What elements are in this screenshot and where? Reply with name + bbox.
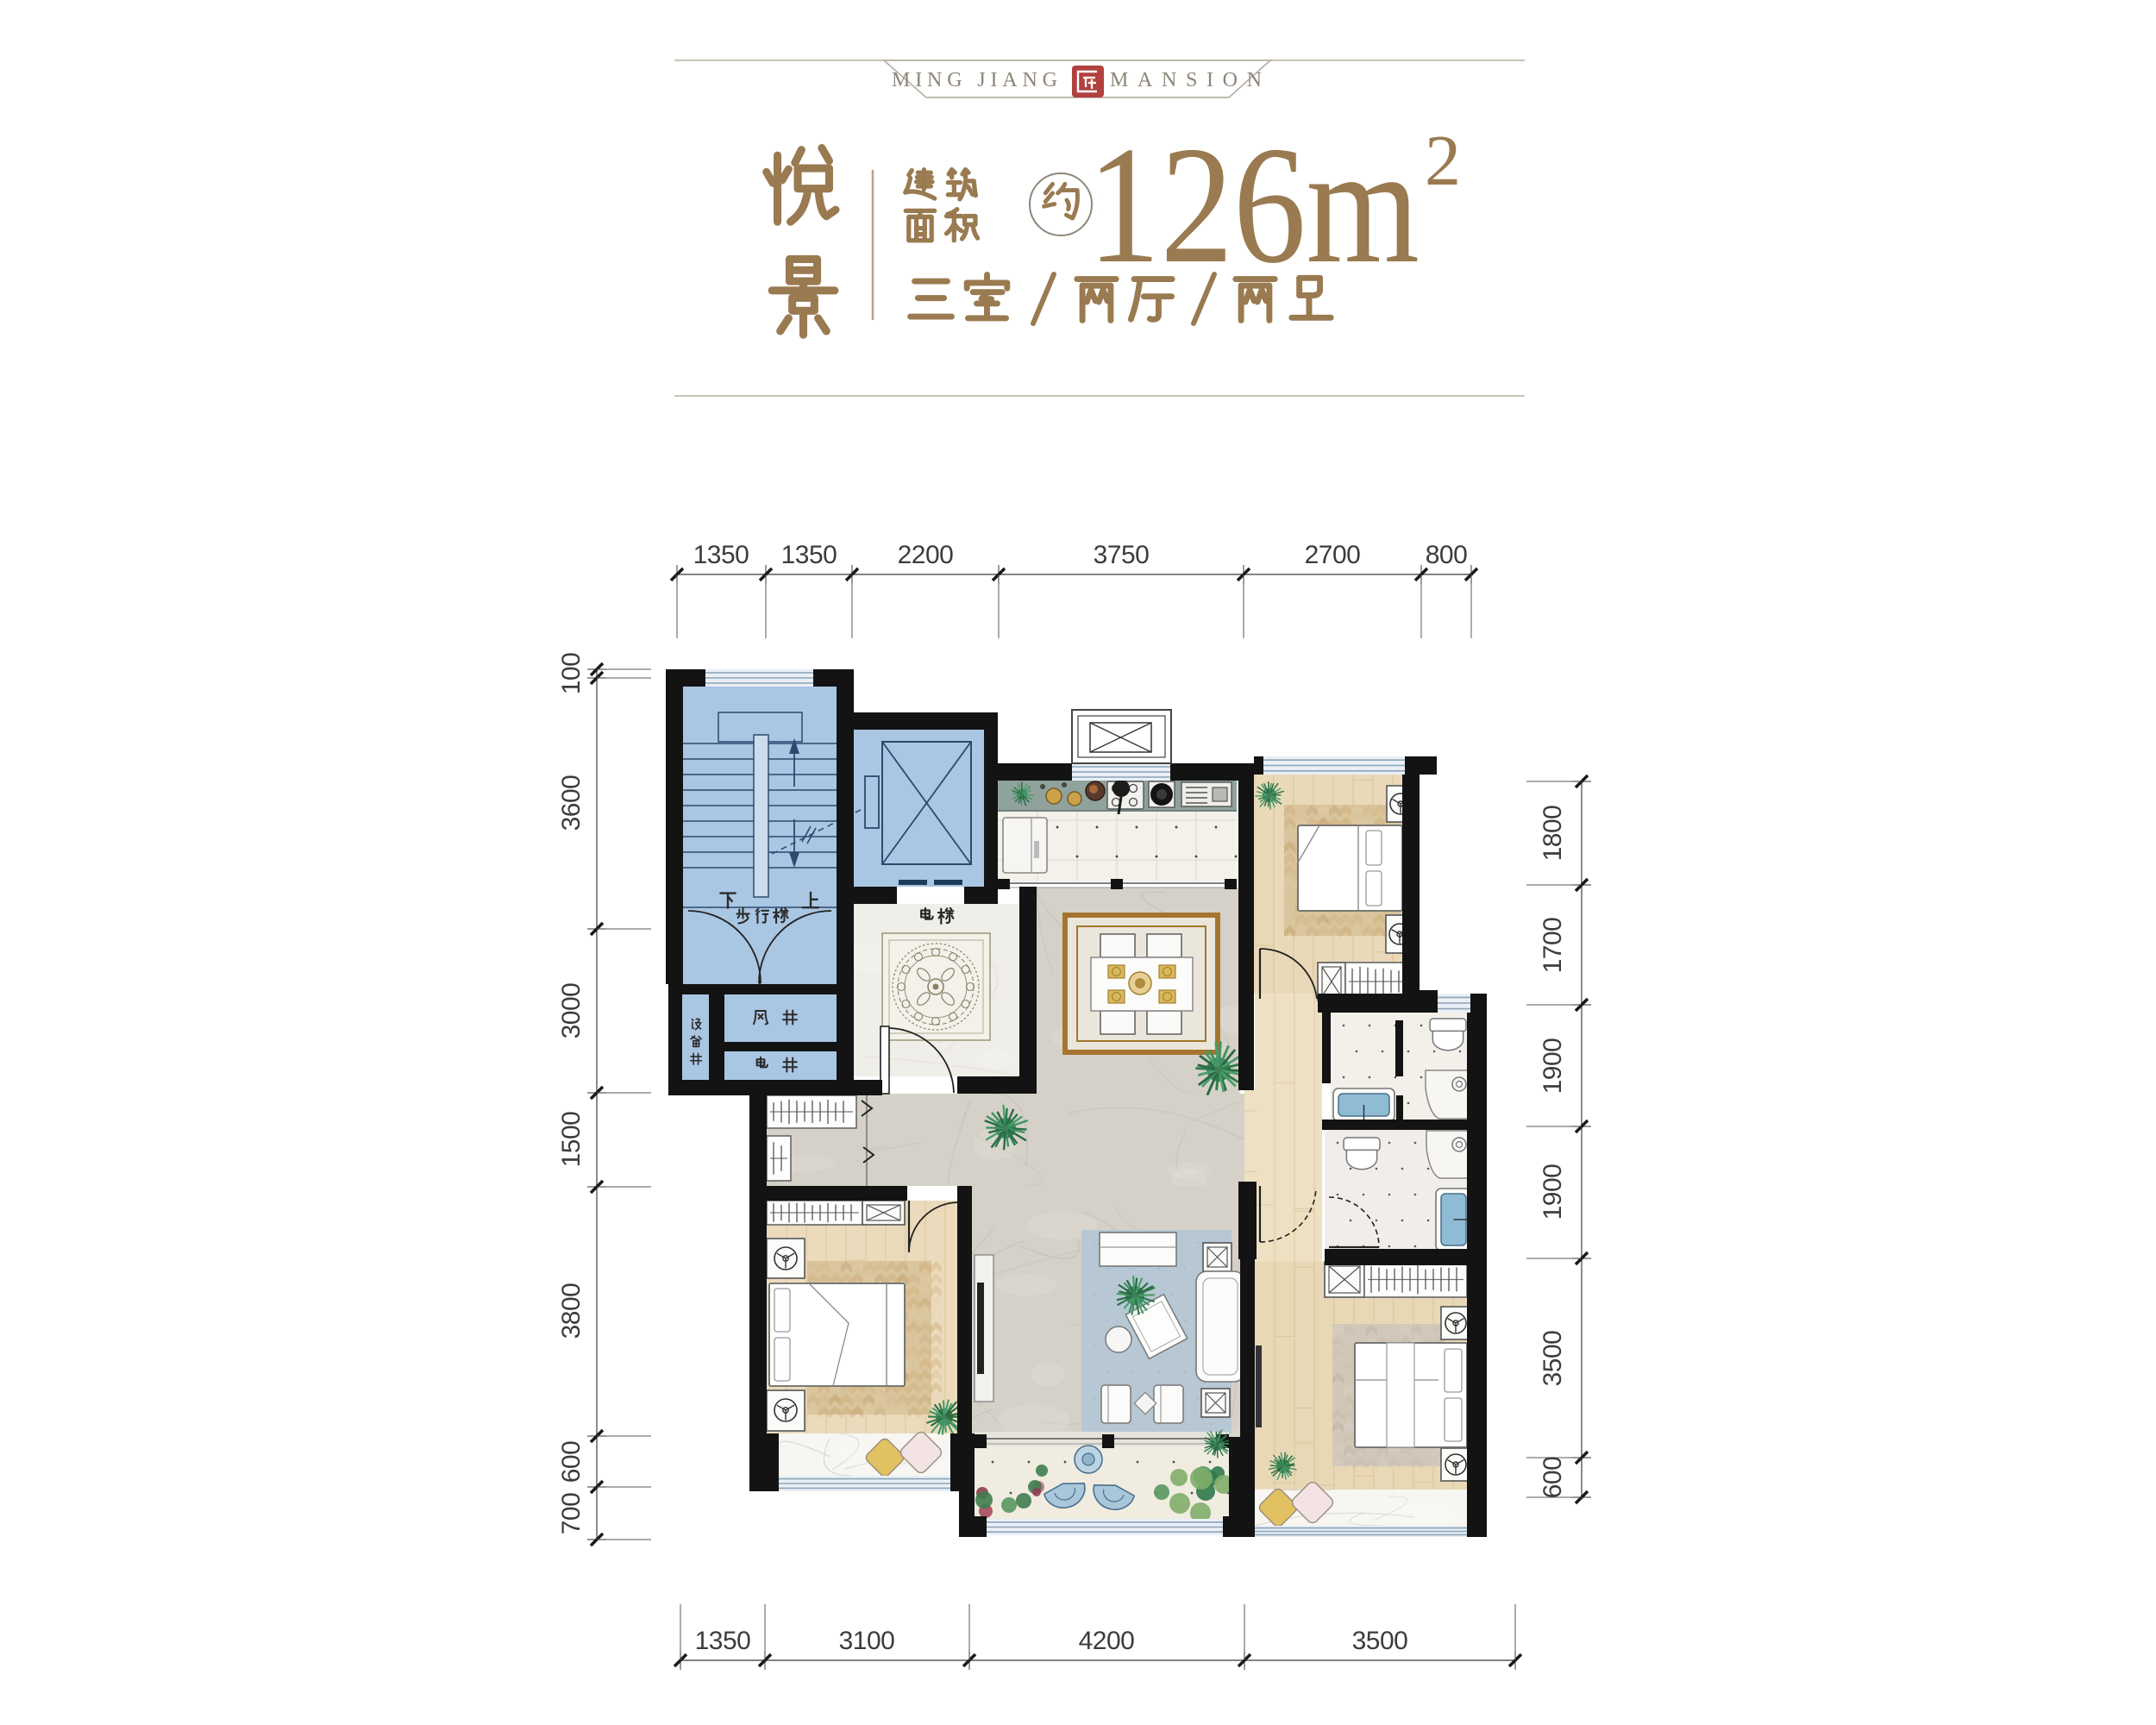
svg-text:800: 800 <box>1426 541 1468 569</box>
svg-text:4200: 4200 <box>1079 1627 1135 1655</box>
svg-text:700: 700 <box>557 1493 586 1535</box>
svg-text:600: 600 <box>557 1441 586 1483</box>
svg-text:1350: 1350 <box>781 541 837 569</box>
svg-text:3000: 3000 <box>557 983 586 1039</box>
svg-text:3750: 3750 <box>1094 541 1150 569</box>
svg-text:3100: 3100 <box>839 1627 895 1655</box>
svg-text:1900: 1900 <box>1539 1038 1567 1095</box>
svg-text:126m: 126m <box>1087 112 1420 298</box>
svg-text:100: 100 <box>557 653 586 695</box>
svg-text:1350: 1350 <box>693 541 749 569</box>
svg-text:1700: 1700 <box>1539 918 1567 974</box>
svg-text:1500: 1500 <box>557 1112 586 1168</box>
svg-text:1900: 1900 <box>1539 1164 1567 1220</box>
svg-text:600: 600 <box>1539 1457 1567 1499</box>
svg-text:MING JIANG: MING JIANG <box>892 69 1062 91</box>
svg-text:2200: 2200 <box>898 541 954 569</box>
svg-text:3800: 3800 <box>557 1283 586 1339</box>
svg-text:1350: 1350 <box>695 1627 751 1655</box>
svg-text:2700: 2700 <box>1305 541 1361 569</box>
svg-text:3500: 3500 <box>1352 1627 1408 1655</box>
svg-text:2: 2 <box>1425 121 1461 201</box>
svg-text:1800: 1800 <box>1539 806 1567 862</box>
svg-text:3500: 3500 <box>1539 1331 1567 1387</box>
svg-text:3600: 3600 <box>557 775 586 831</box>
